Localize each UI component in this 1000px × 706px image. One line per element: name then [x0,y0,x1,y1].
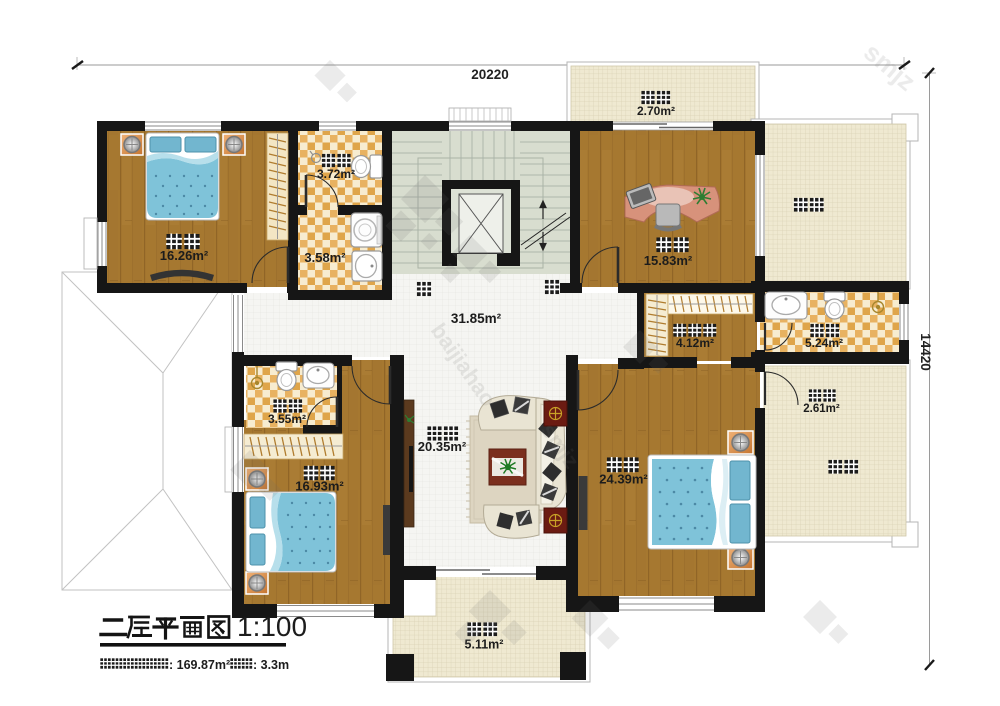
svg-text:14420: 14420 [918,333,933,371]
svg-text:: 169.87m²: : 169.87m² [169,658,230,672]
svg-text:24.39m²: 24.39m² [599,472,648,487]
svg-text:20.35m²: 20.35m² [418,439,467,454]
svg-text:5.24m²: 5.24m² [805,336,843,350]
svg-text:3.55m²: 3.55m² [268,412,306,426]
svg-text:1:100: 1:100 [237,611,307,642]
svg-text:3.72m²: 3.72m² [317,167,355,181]
svg-text:: 3.3m: : 3.3m [253,658,289,672]
svg-text:31.85m²: 31.85m² [451,311,502,326]
svg-text:3.58m²: 3.58m² [304,250,346,265]
svg-text:2.61m²: 2.61m² [803,403,840,415]
svg-text:15.83m²: 15.83m² [644,253,693,268]
svg-text:2.70m²: 2.70m² [637,104,675,118]
svg-text:20220: 20220 [471,67,509,82]
svg-text:16.93m²: 16.93m² [295,479,344,494]
svg-text:4.12m²: 4.12m² [676,336,714,350]
svg-text:16.26m²: 16.26m² [160,248,209,263]
